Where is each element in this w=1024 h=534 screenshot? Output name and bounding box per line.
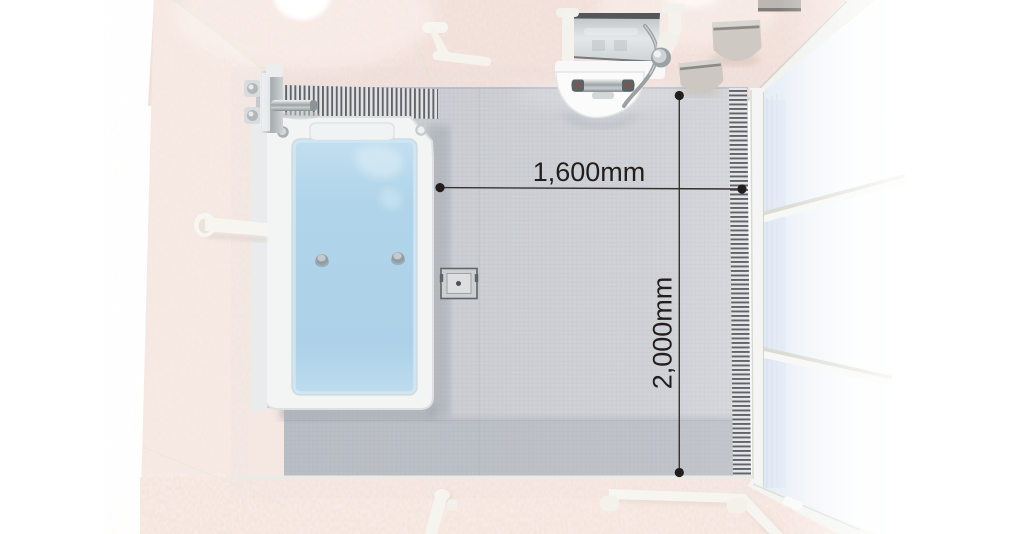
svg-text:2,000mm: 2,000mm [648,277,678,390]
svg-text:1,600mm: 1,600mm [533,157,646,187]
